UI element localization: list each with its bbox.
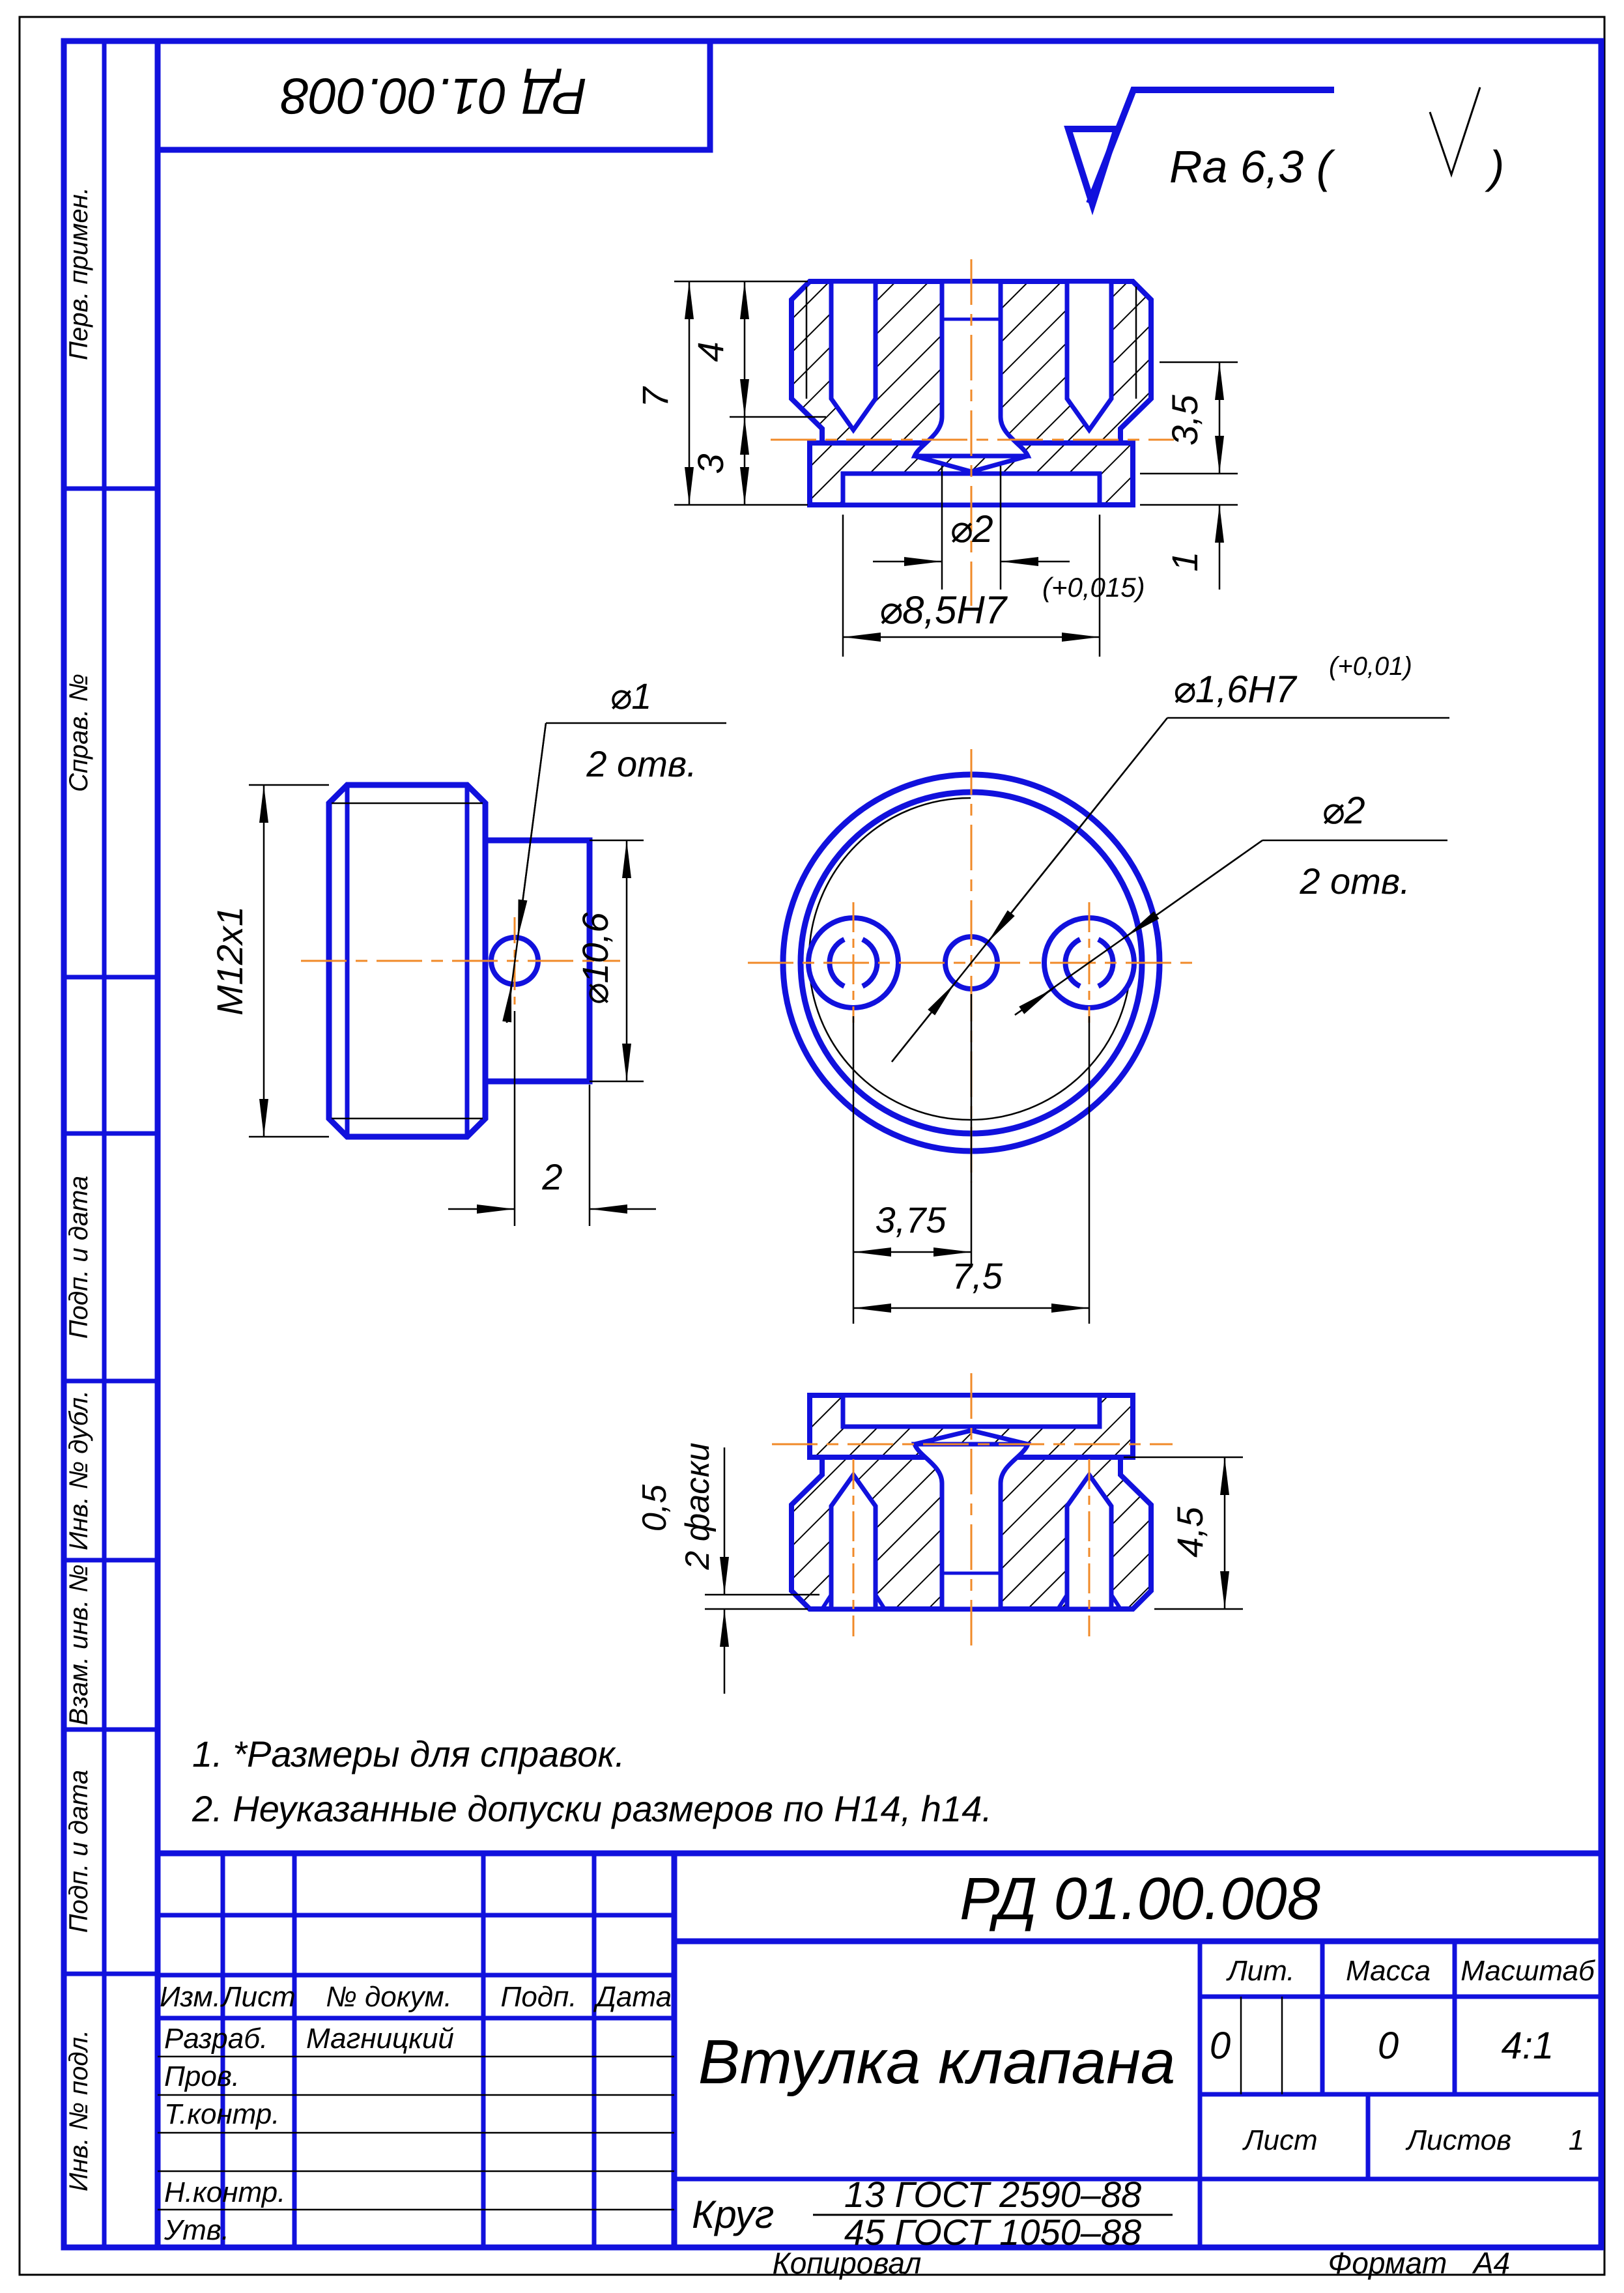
tb-value-massa: 0	[1378, 2025, 1399, 2067]
tb-value-scale: 4:1	[1502, 2025, 1554, 2067]
margin-label-podp-i-data-1: Подп. и дата	[64, 1176, 93, 1339]
dim-bottom-45: 4,5	[1169, 1506, 1210, 1558]
margin-label-inv-podl: Инв. № подл.	[64, 2030, 93, 2191]
dim-top-4: 4	[690, 341, 731, 362]
check-icon	[1430, 87, 1480, 175]
dim-top-3: 3	[690, 453, 731, 474]
doc-number-box: РД 01.00.008	[158, 41, 710, 150]
view-side: ⌀1 2 отв. M12x1 ⌀10,6 2	[209, 676, 726, 1226]
tb-doc-number: РД 01.00.008	[960, 1866, 1320, 1932]
tb-header-ndokum: № докум.	[326, 1981, 452, 2013]
dim-side-d106: ⌀10,6	[575, 912, 616, 1006]
tb-value-listov: 1	[1569, 2124, 1584, 2156]
technical-notes: 1. *Размеры для справок. 2. Неуказанные …	[192, 1733, 992, 1829]
dim-top-d2: ⌀2	[949, 508, 993, 550]
dim-front-375: 3,75	[876, 1199, 947, 1240]
tb-header-podp: Подп.	[500, 1981, 577, 2013]
drawing-sheet: Перв. примен. Справ. № Подп. и дата Инв.…	[0, 0, 1624, 2293]
tb-row-utv: Утв.	[164, 2214, 229, 2246]
dim-top-7: 7	[634, 386, 676, 408]
tb-header-izm: Изм.	[160, 1981, 221, 2013]
tb-header-data: Дата	[593, 1981, 672, 2013]
note-2: 2. Неуказанные допуски размеров по H14, …	[192, 1788, 992, 1829]
roughness-value: Ra 6,3 (	[1169, 141, 1336, 192]
copied-label: Копировал	[773, 2246, 922, 2280]
dim-bottom-05: 0,5	[636, 1484, 674, 1531]
tb-row-razrab: Разраб.	[164, 2023, 268, 2055]
label-front-d16: ⌀1,6H7	[1173, 668, 1298, 711]
tb-header-lit: Лит.	[1225, 1955, 1294, 1987]
tb-row-nkontr: Н.контр.	[164, 2176, 285, 2208]
tb-header-list2: Лист	[1242, 2124, 1317, 2156]
label-side-d1-qty: 2 отв.	[586, 743, 696, 784]
format-value: А4	[1472, 2246, 1510, 2280]
tb-material-top: 13 ГОСТ 2590–88	[844, 2174, 1141, 2215]
margin-label-podp-i-data-2: Подп. и дата	[64, 1770, 93, 1933]
dim-top-d85-tolerance: (+0,015)	[1042, 572, 1145, 603]
view-front: ⌀1,6H7 (+0,01) ⌀2 2 отв. 3,75 7,5	[748, 652, 1449, 1324]
label-front-d2: ⌀2	[1321, 790, 1365, 832]
label-side-d1: ⌀1	[610, 676, 652, 717]
tb-row-tkontr: Т.контр.	[164, 2098, 280, 2130]
tb-header-list: Лист	[220, 1981, 295, 2013]
dim-side-offset2: 2	[541, 1156, 562, 1197]
tb-header-massa: Масса	[1346, 1955, 1431, 1987]
dim-side-m12x1: M12x1	[209, 906, 250, 1016]
dim-top-3-5: 3,5	[1164, 394, 1205, 446]
tb-row-prov: Пров.	[164, 2060, 240, 2092]
dim-front-75: 7,5	[952, 1255, 1003, 1296]
roughness-close-paren: )	[1485, 141, 1504, 192]
view-bottom-section: 0,5 2 фаски 4,5	[636, 1373, 1243, 1694]
margin-label-inv-dubl: Инв. № дубл.	[64, 1390, 93, 1550]
doc-number-flipped: РД 01.00.008	[281, 68, 587, 125]
view-top-section: 7 4 3 3,5 1 ⌀2 ⌀8,5H7 (+0,015)	[634, 259, 1238, 657]
dim-bottom-2-chamfers: 2 фаски	[679, 1442, 717, 1570]
note-1: 1. *Размеры для справок.	[192, 1733, 625, 1774]
roughness-callout: Ra 6,3 ( )	[1068, 87, 1504, 205]
tb-value-lit: 0	[1210, 2025, 1231, 2067]
label-front-d2-qty: 2 отв.	[1299, 861, 1410, 902]
margin-label-vzam-inv: Взам. инв. №	[64, 1564, 93, 1725]
tb-header-listov: Листов	[1405, 2124, 1511, 2156]
format-label: Формат	[1328, 2246, 1447, 2280]
tb-material-prefix: Круг	[692, 2193, 774, 2236]
label-front-d16-tolerance: (+0,01)	[1329, 652, 1412, 681]
title-block: Изм. Лист № докум. Подп. Дата Разраб. Ма…	[158, 1853, 1601, 2253]
tb-value-developer: Магницкий	[306, 2023, 454, 2055]
dim-top-d85: ⌀8,5H7	[879, 588, 1008, 632]
tb-header-masshtab: Масштаб	[1460, 1955, 1596, 1987]
margin-label-perv-primen: Перв. примен.	[64, 187, 93, 360]
tb-part-name: Втулка клапана	[698, 2027, 1176, 2097]
margin-label-sprav-no: Справ. №	[64, 674, 93, 792]
dim-top-1: 1	[1164, 551, 1205, 571]
drawing-canvas: Перв. примен. Справ. № Подп. и дата Инв.…	[0, 0, 1624, 2293]
